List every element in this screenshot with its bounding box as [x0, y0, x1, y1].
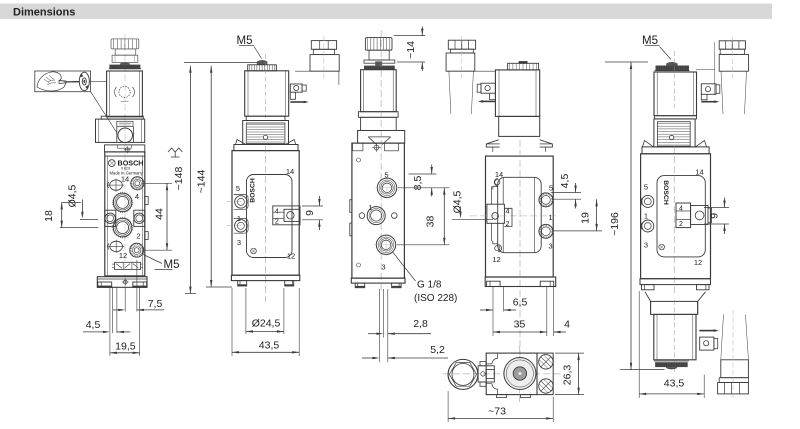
svg-text:2,8: 2,8 — [413, 318, 428, 330]
svg-text:3: 3 — [548, 242, 552, 251]
svg-text:14: 14 — [286, 167, 294, 176]
svg-text:4: 4 — [506, 209, 510, 216]
svg-text:3: 3 — [644, 241, 648, 250]
svg-text:Dimensions: Dimensions — [13, 7, 75, 19]
svg-text:M5: M5 — [164, 259, 180, 271]
svg-text:2: 2 — [679, 221, 683, 228]
svg-text:4: 4 — [679, 205, 683, 212]
svg-text:M5: M5 — [237, 35, 253, 47]
svg-text:5: 5 — [549, 184, 553, 193]
svg-text:38: 38 — [425, 216, 437, 228]
svg-text:~144: ~144 — [196, 170, 208, 194]
svg-text:26,3: 26,3 — [562, 365, 574, 386]
svg-text:(ISO 228): (ISO 228) — [414, 293, 457, 304]
svg-text:12: 12 — [694, 258, 702, 267]
svg-text:4: 4 — [275, 209, 279, 216]
svg-text:~148: ~148 — [173, 167, 185, 191]
svg-text:14: 14 — [695, 168, 703, 177]
svg-text:1: 1 — [644, 212, 648, 221]
svg-text:9: 9 — [304, 210, 316, 216]
svg-text:5,2: 5,2 — [430, 344, 445, 356]
svg-text:5: 5 — [236, 184, 240, 193]
svg-text:4: 4 — [564, 319, 570, 331]
svg-text:19,5: 19,5 — [115, 341, 136, 353]
svg-text:5: 5 — [644, 183, 648, 192]
svg-text:2: 2 — [136, 232, 140, 241]
svg-text:Ø24,5: Ø24,5 — [252, 318, 281, 330]
svg-text:19: 19 — [580, 212, 592, 224]
svg-text:12: 12 — [492, 255, 500, 264]
svg-text:Ø4,5: Ø4,5 — [67, 184, 79, 207]
svg-text:~14: ~14 — [405, 41, 417, 59]
svg-text:BOSCH: BOSCH — [250, 178, 257, 203]
svg-text:M5: M5 — [642, 35, 658, 47]
svg-text:43,5: 43,5 — [664, 378, 685, 390]
svg-text:18: 18 — [43, 210, 55, 222]
svg-text:Ø4,5: Ø4,5 — [452, 190, 464, 213]
svg-text:~73: ~73 — [488, 406, 506, 418]
svg-text:12: 12 — [119, 251, 127, 260]
svg-text:6,5: 6,5 — [513, 297, 528, 309]
svg-text:12: 12 — [287, 252, 295, 261]
svg-text:G 1/8: G 1/8 — [417, 280, 442, 291]
svg-text:3: 3 — [237, 238, 241, 247]
svg-text:43,5: 43,5 — [259, 339, 280, 351]
svg-text:~196: ~196 — [609, 212, 621, 236]
svg-text:2: 2 — [275, 219, 279, 226]
svg-text:4: 4 — [135, 192, 139, 201]
svg-text:9: 9 — [709, 213, 721, 219]
svg-text:1: 1 — [548, 213, 552, 222]
svg-text:44: 44 — [154, 208, 166, 220]
svg-text:BOSCH: BOSCH — [662, 180, 669, 205]
svg-text:7,5: 7,5 — [148, 298, 163, 310]
svg-text:35: 35 — [514, 319, 526, 331]
svg-text:3: 3 — [381, 263, 385, 272]
svg-text:4,5: 4,5 — [86, 319, 101, 331]
svg-text:2: 2 — [506, 221, 510, 228]
svg-text:4,5: 4,5 — [559, 174, 571, 189]
svg-text:14: 14 — [121, 174, 129, 183]
